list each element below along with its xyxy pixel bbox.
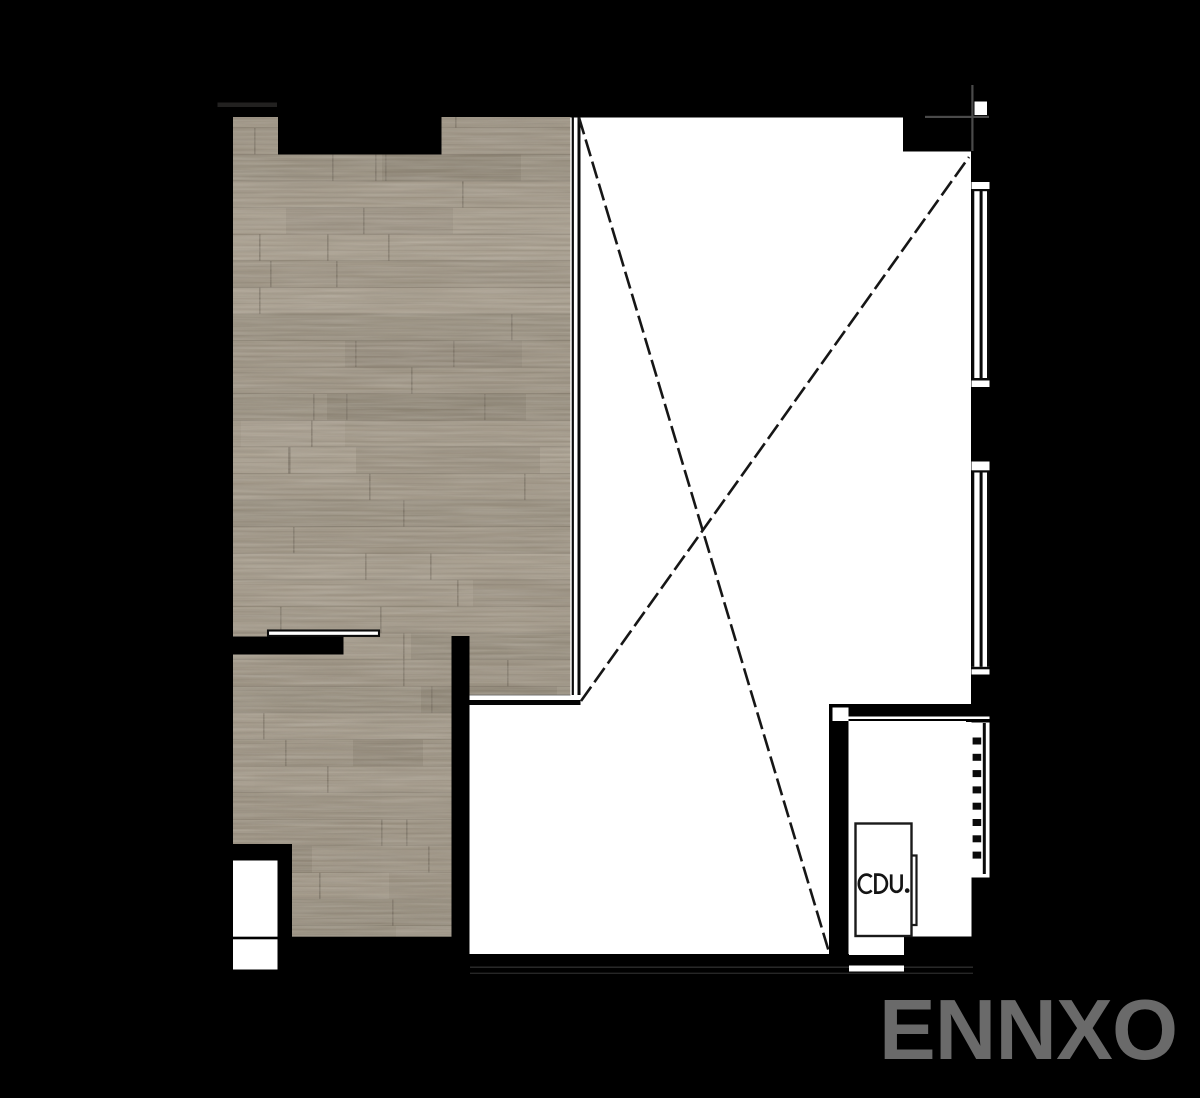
svg-text:ENNXO: ENNXO — [879, 983, 1177, 1078]
